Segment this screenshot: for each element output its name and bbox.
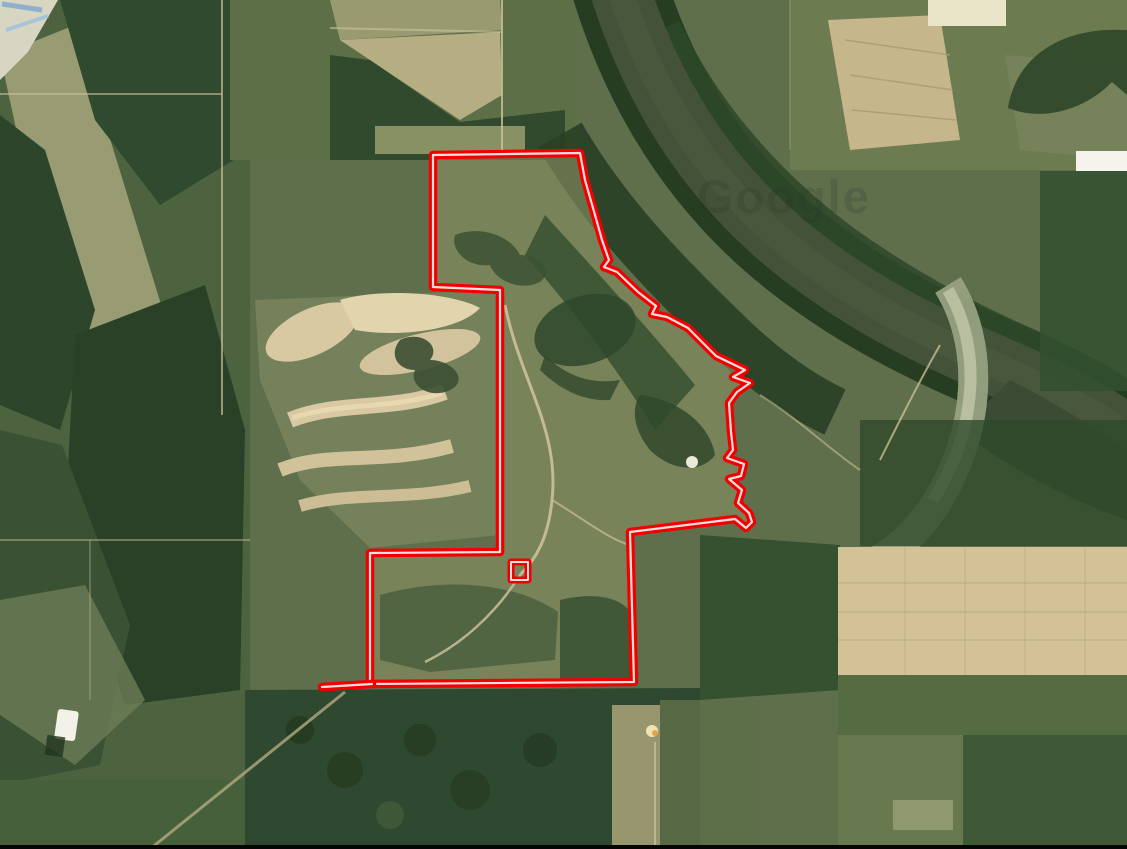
top-center-fields [230,0,575,160]
satellite-imagery: Google [0,0,1127,849]
google-watermark: Google [697,170,871,223]
satellite-map-view[interactable]: Google [0,0,1127,849]
bottom-letterbox-bar [0,845,1127,849]
